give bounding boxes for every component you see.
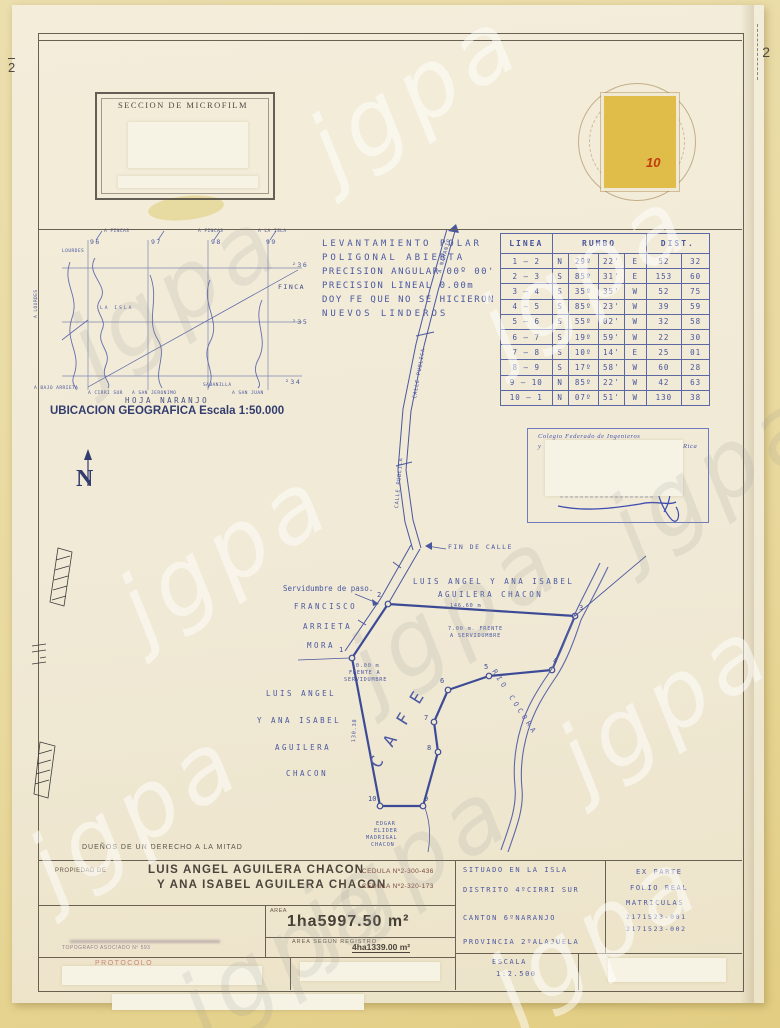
matricula-2: 2171523-002 (626, 925, 687, 933)
footer-vline-5 (578, 953, 579, 990)
bearing-cell: 85º (568, 269, 598, 284)
header-divider (38, 229, 742, 230)
vertex-3: 3 (579, 604, 583, 612)
bearing-cell: S (552, 360, 568, 375)
note-line: PRECISION ANGULAR 00º 00' (322, 267, 495, 277)
propiedad-label: PROPIEDAD DE (55, 868, 106, 874)
survey-notes: LEVANTAMIENTO POLAR POLIGONAL ABIERTA PR… (322, 239, 495, 319)
bearing-cell: 8 – 9 (501, 360, 553, 375)
bearing-cell: 85º (568, 299, 598, 314)
map-grid-99: 99 (266, 238, 277, 246)
south-neighbor-2: ELIDER (374, 828, 398, 834)
bearing-cell: E (624, 345, 646, 360)
redaction-microfilm (128, 122, 248, 168)
owner-west-2: Y ANA ISABEL (257, 716, 341, 725)
cfia-line2-left: y (538, 443, 542, 450)
redaction-footer-right (608, 958, 726, 982)
bearing-cell: W (624, 375, 646, 390)
vertex-5: 5 (484, 663, 488, 671)
microfilm-right-number: 2 (762, 44, 770, 60)
bearing-cell: 2 – 3 (501, 269, 553, 284)
note-line: POLIGONAL ABIERTA (322, 253, 495, 263)
owner-west-3: AGUILERA (275, 743, 331, 752)
owner1-name: LUIS ANGEL AGUILERA CHACON (148, 864, 364, 876)
cfia-line1: Colegio Federado de Ingenieros (538, 433, 640, 440)
north-arrow-letter: N (76, 466, 93, 493)
vertex-2: 2 (377, 591, 381, 599)
col-linea: LINEA (501, 234, 553, 254)
bearing-cell: W (624, 299, 646, 314)
note-line: LEVANTAMIENTO POLAR (322, 239, 495, 249)
map-grid-97: 97 (151, 238, 162, 246)
bearing-cell: 23' (598, 299, 624, 314)
owner-north-line1: LUIS ANGEL Y ANA ISABEL (413, 577, 574, 586)
bearing-cell: 58' (598, 360, 624, 375)
map-grid-96: 96 (90, 238, 101, 246)
bearing-cell: 59' (598, 329, 624, 344)
frente-10-line2: FRENTE A (349, 670, 380, 676)
map-grid-235: ²35 (292, 318, 308, 326)
bearing-cell: 31' (598, 269, 624, 284)
bearing-cell: 7 – 8 (501, 345, 553, 360)
bearing-cell: 35' (598, 284, 624, 299)
bearing-cell: W (624, 329, 646, 344)
bearing-cell: 07º (568, 390, 598, 405)
bearing-cell: W (624, 284, 646, 299)
map-sheet-name: HOJA NARANJO (125, 396, 209, 405)
matricula-1: 2171523-001 (626, 913, 687, 921)
bearing-cell: 9 – 10 (501, 375, 553, 390)
surveyor-name-faded (70, 940, 220, 943)
bearing-cell: 1 – 2 (501, 254, 553, 269)
area-value: 1ha5997.50 m² (287, 913, 409, 931)
area-label: AREA (270, 908, 287, 914)
redaction-microfilm-2 (118, 176, 258, 188)
bearing-cell: N (552, 254, 568, 269)
south-neighbor-3: MADRIGAL (366, 835, 397, 841)
bearing-cell: 10º (568, 345, 598, 360)
owner-west-1: LUIS ANGEL (266, 689, 336, 698)
bearing-cell: 6 – 7 (501, 329, 553, 344)
bearing-cell: 02' (598, 314, 624, 329)
bearing-cell: 3 – 4 (501, 284, 553, 299)
bearing-cell: S (552, 284, 568, 299)
map-label-sabanilla: SABANILLA (203, 383, 232, 388)
map-grid-234: ²34 (285, 378, 301, 386)
south-neighbor-4: CHACON (371, 842, 395, 848)
bearing-cell: W (624, 360, 646, 375)
map-label-la-isla: LA ISLA (100, 306, 133, 311)
bearing-cell: S (552, 329, 568, 344)
microfilm-dashes (757, 24, 758, 80)
bearing-cell: S (552, 269, 568, 284)
label-servidumbre: Servidumbre de paso. (283, 584, 373, 593)
footer-line-3 (38, 957, 455, 958)
footer-vline-4 (290, 957, 291, 990)
bearing-cell: 55º (568, 314, 598, 329)
footer-vline-1 (455, 860, 456, 990)
situado-text: SITUADO EN LA ISLA (463, 866, 568, 874)
note-line: PRECISION LINEAL 0.00m (322, 281, 495, 291)
bearing-cell: 17º (568, 360, 598, 375)
bearing-cell: 51' (598, 390, 624, 405)
bearing-cell: 10 – 1 (501, 390, 553, 405)
registro-value: 4ha1339.00 m² (352, 942, 410, 953)
bearing-cell: 22' (598, 254, 624, 269)
surveyor-number: TOPOGRAFO ASOCIADO Nº 593 (62, 945, 150, 951)
owner2-name: Y ANA ISABEL AGUILERA CHACON (157, 879, 387, 891)
map-grid-236: ²36 (292, 261, 308, 269)
bearing-cell: 29º (568, 254, 598, 269)
footer-vline-2 (605, 860, 606, 953)
frame-inner-topline (38, 40, 742, 41)
owner-north-line2: AGUILERA CHACON (438, 590, 543, 599)
area-underline (265, 937, 455, 938)
bearing-cell: N (552, 375, 568, 390)
bearing-cell: S (552, 345, 568, 360)
owner-west-4: CHACON (286, 769, 328, 778)
west-neighbor-2: ARRIETA (303, 622, 352, 631)
cfia-line2-right: Rica (683, 443, 697, 450)
bearing-cell: N (552, 390, 568, 405)
bearing-cell: 14' (598, 345, 624, 360)
matriculas-text: MATRICULAS (626, 899, 684, 907)
frente-7-line2: A SERVIDUMBRE (450, 633, 501, 639)
vertex-8: 8 (427, 744, 431, 752)
vertex-7: 7 (424, 714, 428, 722)
footer-top-line (38, 860, 742, 861)
microfilm-title: SECCION DE MICROFILM (95, 100, 271, 110)
redaction-protocolo (62, 966, 262, 985)
frente-10-line3: SERVIDUMBRE (344, 677, 387, 683)
bearing-cell: 4 – 5 (501, 299, 553, 314)
bearing-cell: E (624, 254, 646, 269)
map-label-lourdes: LOURDES (62, 249, 84, 254)
bearing-cell: 19º (568, 329, 598, 344)
bearing-cell: 5 – 6 (501, 314, 553, 329)
escala-value: 1:2.500 (496, 970, 537, 978)
bearing-cell: W (624, 390, 646, 405)
vertex-9: 9 (424, 795, 428, 803)
map-label-a-cirri-sur: A CIRRI SUR (88, 391, 123, 396)
col-rumbo: RUMBO (552, 234, 646, 254)
bearing-cell: E (624, 269, 646, 284)
escala-label: ESCALA (492, 958, 527, 966)
bearing-cell: S (552, 299, 568, 314)
bearing-cell: 85º (568, 375, 598, 390)
frente-7-line1: 7.00 m. FRENTE (448, 626, 503, 632)
bearing-cell: 22' (598, 375, 624, 390)
map-label-a-bajo-arrieta: A BAJO ARRIETA (34, 386, 78, 391)
distrito-text: DISTRITO 4ºCIRRI SUR (463, 886, 579, 894)
note-line: NUEVOS LINDEROS (322, 309, 495, 319)
map-caption: UBICACION GEOGRAFICA Escala 1:50.000 (50, 405, 284, 417)
owner2-cedula: CEDULA Nº2-320-173 (362, 883, 434, 890)
vertex-10: 10 (368, 795, 376, 803)
dim-2-3: 146.60 m (450, 603, 481, 609)
map-label-a-lourdes: A LOURDES (34, 290, 39, 319)
canton-text: CANTON 6ºNARANJO (463, 914, 556, 922)
vertex-4: 4 (553, 657, 557, 665)
scanned-survey-document: SECCION DE MICROFILM 2 2 10 A FINCAS A F… (0, 0, 780, 1028)
bearing-cell: W (624, 314, 646, 329)
footer-line-4 (455, 953, 742, 954)
bearing-cell: 35º (568, 284, 598, 299)
west-neighbor-1: FRANCISCO (294, 602, 357, 611)
footer-line-2 (38, 905, 455, 906)
microfilm-left-number: 2 (8, 58, 15, 75)
label-fin-de-calle: FIN DE CALLE (448, 543, 513, 551)
frente-10-line1: 10.00 m (352, 663, 379, 669)
map-grid-98: 98 (211, 238, 222, 246)
dim-10-1: 130.38 (351, 718, 358, 742)
redaction-cfia (545, 440, 683, 496)
duenos-note: DUEÑOS DE UN DERECHO A LA MITAD (82, 844, 243, 851)
note-line: DOY FE QUE NO SE HICIERON (322, 295, 495, 305)
bearing-cell: S (552, 314, 568, 329)
owner1-cedula: CEDULA Nº2-300-436 (362, 868, 434, 875)
west-neighbor-3: MORA (307, 641, 335, 650)
redaction-footer-mid (300, 962, 440, 981)
vertex-1: 1 (339, 646, 343, 654)
postage-stamp-value: 10 (646, 155, 778, 1026)
ex-parte-text: EX PARTE (636, 868, 683, 876)
redaction-below-frame (112, 994, 364, 1010)
map-label-finca: FINCA (278, 283, 305, 291)
provincia-text: PROVINCIA 2ºALAJUELA (463, 938, 579, 946)
vertex-6: 6 (440, 677, 444, 685)
map-label-a-san-juan: A SAN JUAN (232, 391, 264, 396)
folio-real-text: FOLIO REAL (630, 884, 688, 892)
south-neighbor-1: EDGAR (376, 821, 396, 827)
footer-vline-3 (265, 905, 266, 957)
